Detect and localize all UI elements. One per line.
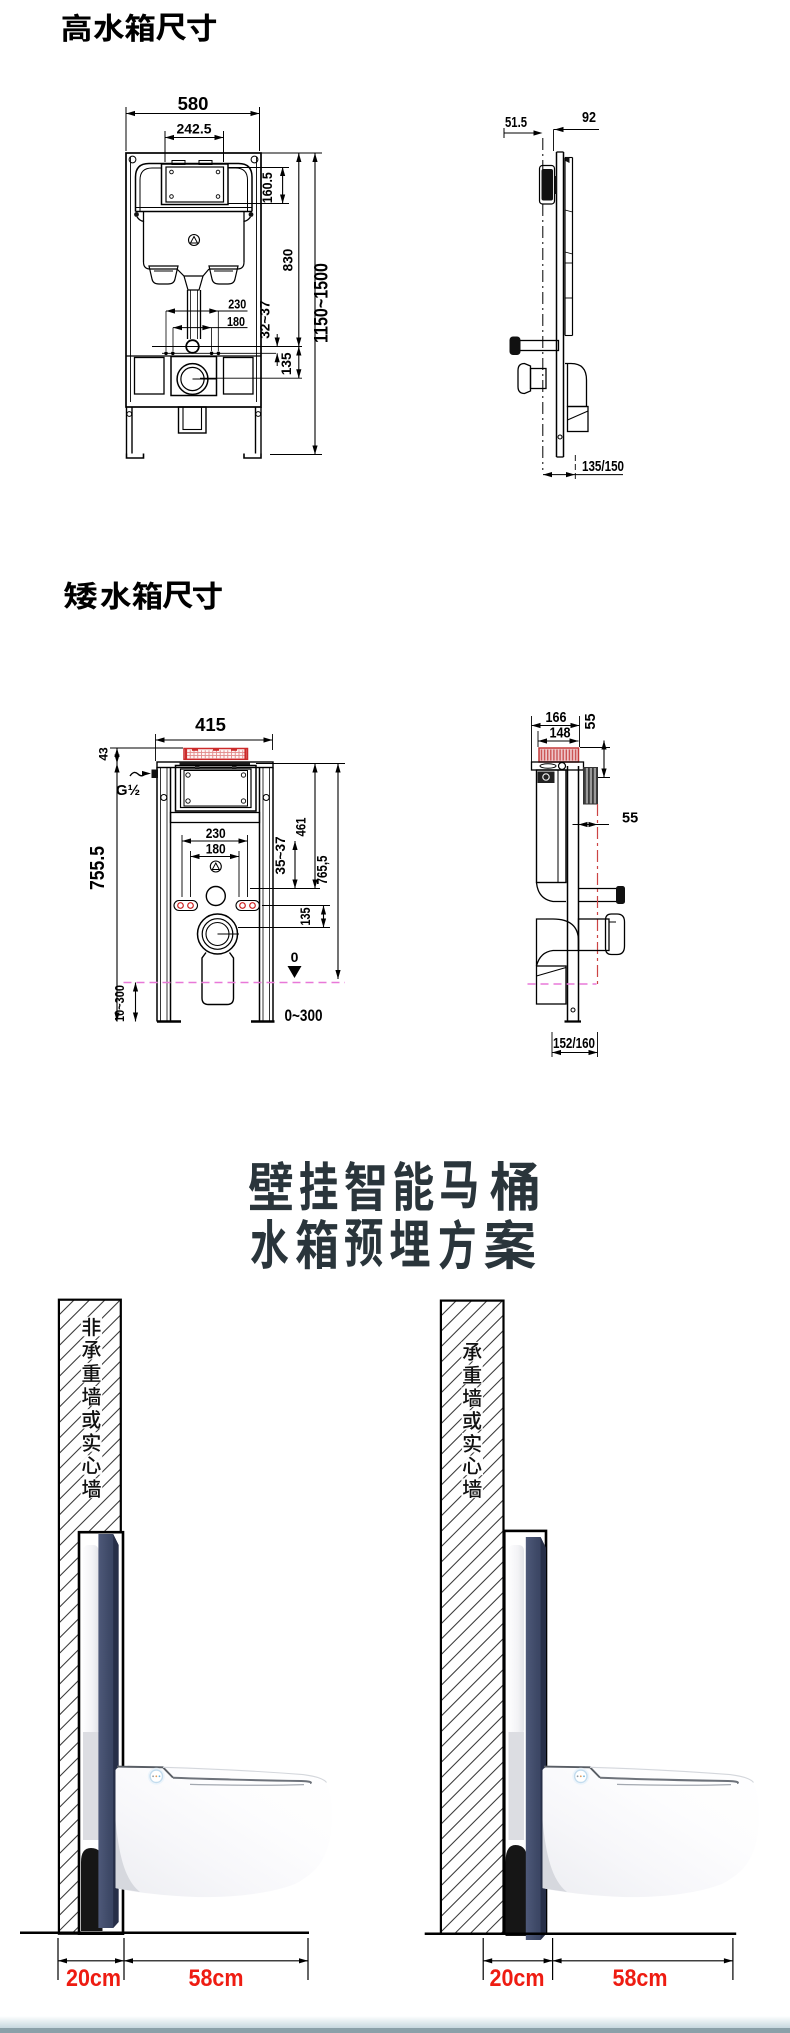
svg-text:0: 0 (291, 949, 299, 965)
svg-text:58cm: 58cm (613, 1965, 668, 1992)
svg-text:230: 230 (228, 297, 246, 312)
svg-text:166: 166 (546, 710, 567, 726)
svg-text:830: 830 (280, 249, 295, 272)
svg-text:415: 415 (195, 714, 226, 735)
svg-text:580: 580 (178, 93, 209, 114)
svg-text:1150~1500: 1150~1500 (312, 263, 333, 343)
svg-text:55: 55 (583, 713, 599, 729)
svg-text:32~37: 32~37 (257, 301, 272, 339)
svg-text:35~37: 35~37 (273, 836, 288, 874)
svg-text:765,5: 765,5 (315, 856, 331, 885)
svg-text:135: 135 (298, 907, 313, 925)
svg-text:148: 148 (550, 726, 571, 742)
svg-text:51.5: 51.5 (505, 115, 527, 131)
svg-text:180: 180 (227, 314, 245, 329)
svg-text:160.5: 160.5 (260, 172, 275, 203)
svg-text:55: 55 (622, 811, 638, 827)
svg-text:43: 43 (97, 747, 111, 761)
svg-text:10~300: 10~300 (112, 985, 127, 1022)
svg-text:135/150: 135/150 (582, 459, 624, 475)
svg-text:58cm: 58cm (189, 1965, 244, 1992)
svg-text:92: 92 (582, 110, 596, 126)
svg-text:135: 135 (279, 352, 294, 375)
svg-text:20cm: 20cm (490, 1965, 545, 1992)
svg-text:20cm: 20cm (66, 1965, 121, 1992)
svg-text:0~300: 0~300 (285, 1007, 323, 1025)
svg-text:461: 461 (294, 817, 309, 836)
svg-text:152/160: 152/160 (553, 1036, 595, 1052)
svg-text:G½: G½ (116, 782, 140, 799)
svg-text:180: 180 (206, 841, 226, 857)
svg-text:242.5: 242.5 (176, 121, 211, 137)
svg-text:755.5: 755.5 (87, 846, 109, 890)
svg-text:230: 230 (206, 825, 226, 841)
